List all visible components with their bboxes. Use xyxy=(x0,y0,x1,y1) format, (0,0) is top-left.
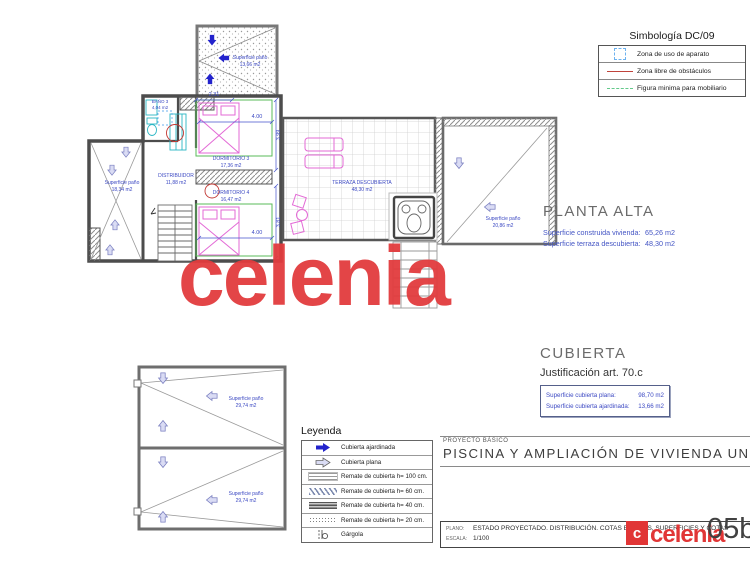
planta-alta-section: PLANTA ALTA Superficie construida vivien… xyxy=(543,203,675,249)
green-line-icon xyxy=(603,88,637,89)
cubierta-plana-arrow-icon xyxy=(305,457,341,468)
leyenda-row: Remate de cubierta h= 60 cm. xyxy=(302,485,432,500)
roof-plan xyxy=(134,367,285,529)
drawing-sheet: Superficie paño13,66 m2 Superficie paño1… xyxy=(0,0,750,564)
patio-right-label: Superficie paño20,86 m2 xyxy=(486,216,521,230)
leyenda-row: Gárgola xyxy=(302,528,432,542)
patio-top-label: Superficie paño13,66 m2 xyxy=(233,55,268,69)
cubierta-row: Superficie cubierta plana: 98,70 m2 xyxy=(546,390,664,401)
cubierta-title: CUBIERTA xyxy=(540,345,670,362)
dormitorio4-label: DORMITORIO 416,47 m2 xyxy=(213,190,250,204)
dim-4-00-a: 4.00 xyxy=(252,114,263,120)
simbologia-label: Zona libre de obstáculos xyxy=(637,68,711,75)
simbologia-row: Figura minima para mobiliario xyxy=(599,80,745,96)
simbologia-label: Figura minima para mobiliario xyxy=(637,85,727,92)
leyenda-box: Cubierta ajardinada Cubierta plana Remat… xyxy=(301,440,433,543)
escala-label: ESCALA: xyxy=(446,536,467,542)
leyenda-panel: Leyenda Cubierta ajardinada Cubierta pla… xyxy=(301,425,433,543)
dim-2-31: 2.31 xyxy=(209,92,220,98)
simbologia-title: Simbología DC/09 xyxy=(598,30,746,42)
cubierta-ajardinada-arrow-icon xyxy=(305,442,341,453)
cubierta-subtitle: Justificación art. 70.c xyxy=(540,367,670,379)
leyenda-row: Remate de cubierta h= 100 cm. xyxy=(302,470,432,485)
remate-100-hatch-icon xyxy=(305,472,341,481)
leyenda-row: Remate de cubierta h= 40 cm. xyxy=(302,499,432,514)
cubierta-box: Superficie cubierta plana: 98,70 m2 Supe… xyxy=(540,385,670,417)
planta-alta-row: Superficie terraza descubierta: 48,30 m2 xyxy=(543,238,675,249)
cubierta-section: CUBIERTA Justificación art. 70.c Superfi… xyxy=(540,345,670,417)
bano3-label: BAÑO 34,04 m2 xyxy=(152,99,169,111)
leyenda-title: Leyenda xyxy=(301,425,433,437)
watermark-text: celenia xyxy=(178,234,449,318)
planta-alta-title: PLANTA ALTA xyxy=(543,203,675,220)
leyenda-row: Cubierta plana xyxy=(302,456,432,471)
celenia-logo-mark: c xyxy=(626,521,648,545)
project-type: PROYECTO BÁSICO xyxy=(443,438,508,444)
dormitorio3-label: DORMITORIO 317,36 m2 xyxy=(213,156,250,170)
terraza-label: TERRAZA DESCUBIERTA48,30 m2 xyxy=(332,180,392,194)
leyenda-row: Cubierta ajardinada xyxy=(302,441,432,456)
sheet-number: 05b xyxy=(707,515,750,544)
simbologia-row: Zona de uso de aparato xyxy=(599,46,745,63)
title-block-rule-bottom xyxy=(440,466,750,467)
planta-alta-row: Superficie construida vivienda: 65,26 m2 xyxy=(543,227,675,238)
patio-left-label: Superficie paño18,34 m2 xyxy=(105,180,140,194)
simbologia-box: Zona de uso de aparato Zona libre de obs… xyxy=(598,45,746,97)
escala-value: 1/100 xyxy=(473,535,489,542)
gargola-icon xyxy=(305,529,341,540)
remate-20-hatch-icon xyxy=(305,517,341,523)
project-title: PISCINA Y AMPLIACIÓN DE VIVIENDA UNIFAMI… xyxy=(443,446,750,461)
cubierta-row: Superficie cubierta ajardinada: 13,66 m2 xyxy=(546,401,664,412)
simbologia-panel: Simbología DC/09 Zona de uso de aparato … xyxy=(598,30,746,97)
remate-60-hatch-icon xyxy=(305,488,341,495)
red-line-icon xyxy=(603,71,637,72)
roof-panel-1-label: Superficie paño29,74 m2 xyxy=(229,396,264,410)
simbologia-row: Zona libre de obstáculos xyxy=(599,63,745,80)
dim-3-99: 3.99 xyxy=(276,130,282,141)
zone-square-icon xyxy=(603,48,637,60)
roof-panel-2-label: Superficie paño29,74 m2 xyxy=(229,491,264,505)
plano-label: PLANO: xyxy=(446,526,464,532)
leyenda-row: Remate de cubierta h= 20 cm. xyxy=(302,514,432,529)
title-block-rule-top xyxy=(440,436,750,437)
distribuidor-label: DISTRIBUIDOR11,88 m2 xyxy=(158,173,194,187)
simbologia-label: Zona de uso de aparato xyxy=(637,51,709,58)
dim-3-81: 3.81 xyxy=(276,217,282,228)
remate-40-hatch-icon xyxy=(305,502,341,509)
